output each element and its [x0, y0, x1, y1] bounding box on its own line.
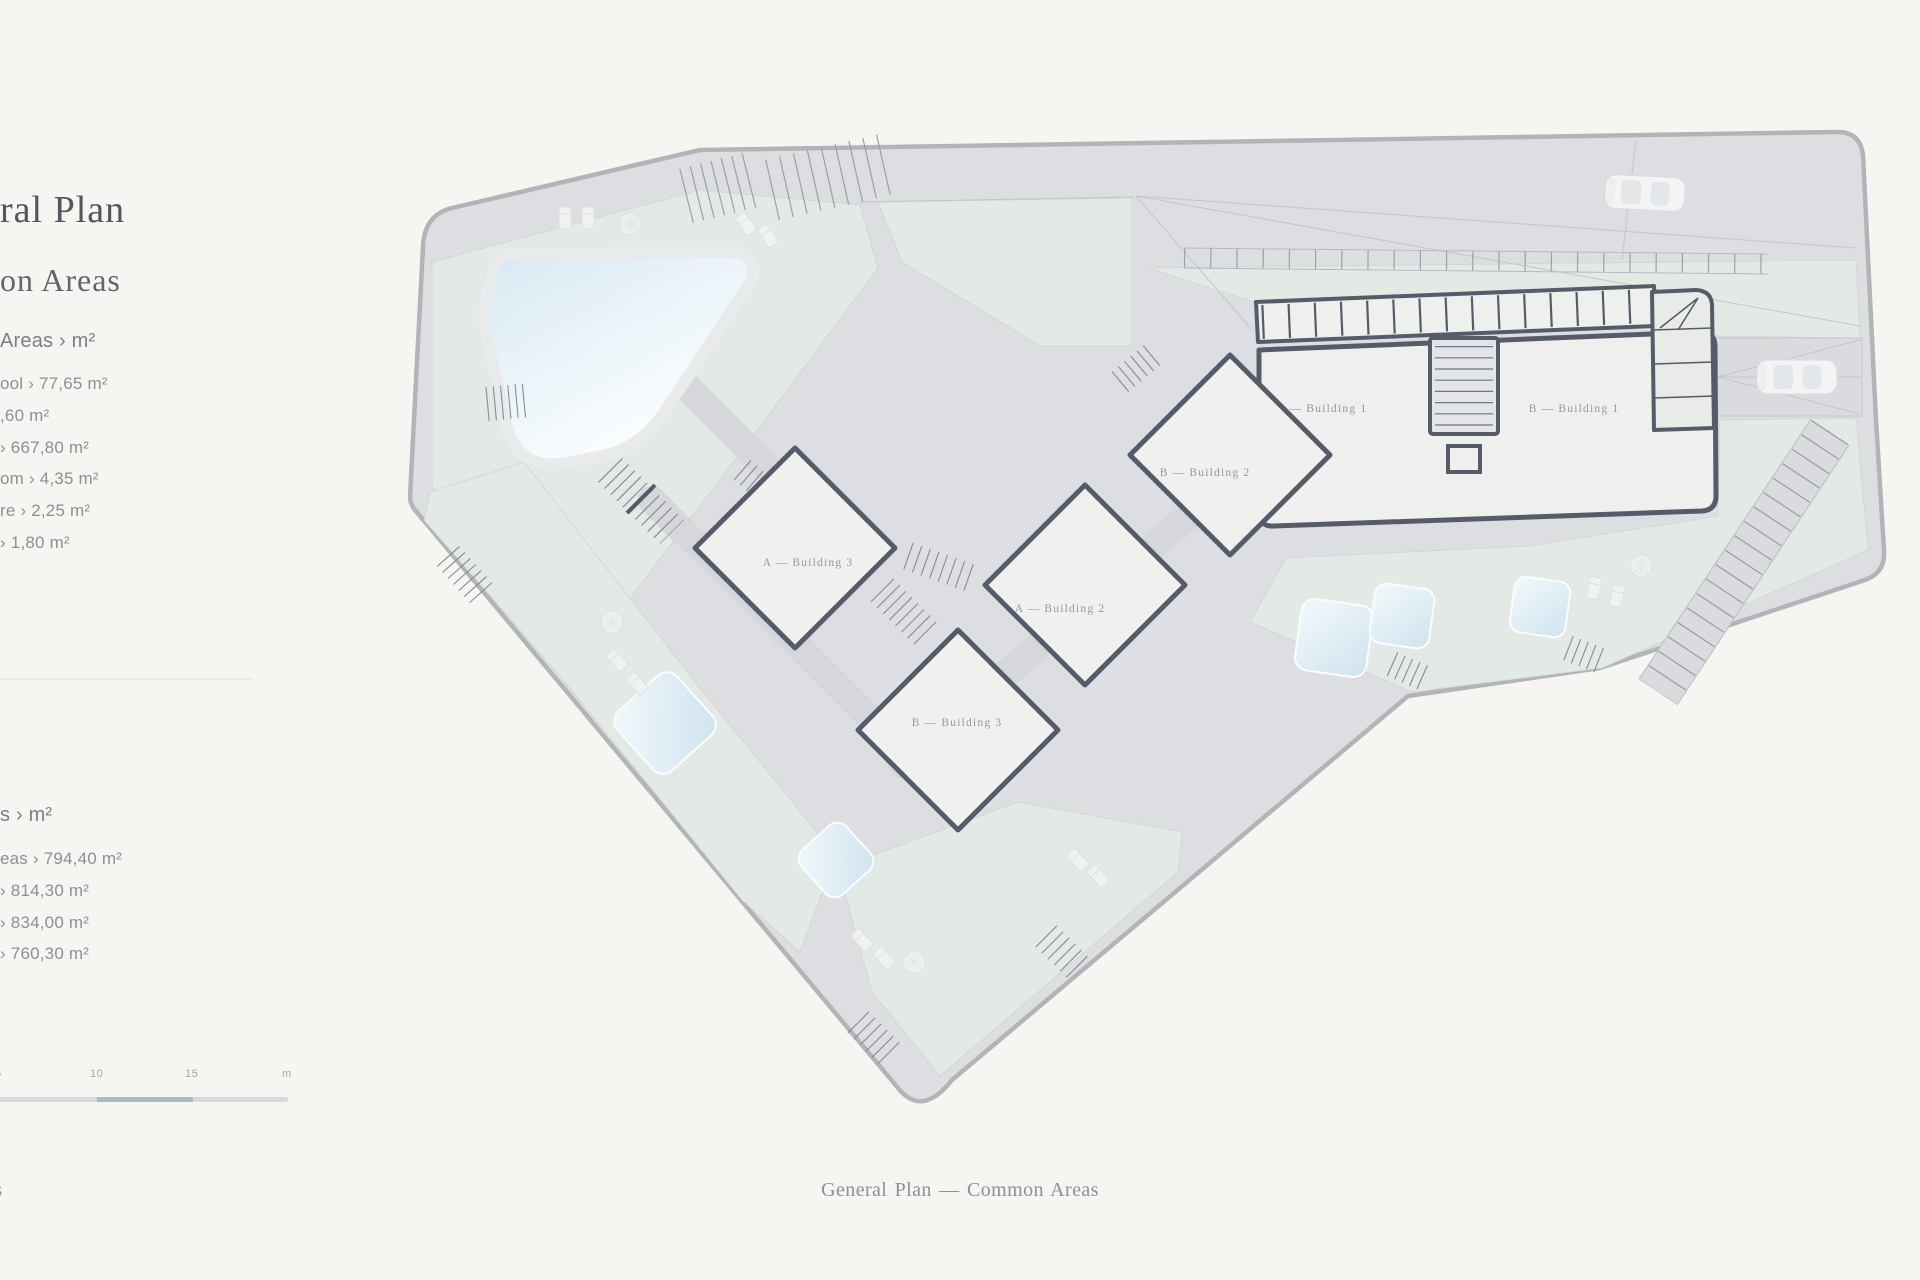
page-subtitle: on Areas [0, 262, 121, 299]
scale-tick-label: m [282, 1068, 292, 1080]
building-label-a3: A — Building 3 [763, 557, 854, 569]
list-item: › 667,80 m² [0, 432, 108, 464]
list-item: re › 2,25 m² [0, 495, 108, 527]
elevator [1448, 446, 1480, 472]
sidebar-divider [0, 678, 253, 680]
plots-header: s › m² [0, 804, 52, 827]
building-label-a2: A — Building 2 [1015, 603, 1106, 615]
plan-caption: General Plan — Common Areas [0, 1179, 1920, 1202]
building-label-b1: B — Building 1 [1529, 403, 1620, 415]
scale-tick-label: 5 [0, 1068, 2, 1080]
list-item: › 760,30 m² [0, 938, 122, 970]
site-plan-drawing: A — Building 1 B — Building 1 A — Buildi… [0, 0, 1920, 1280]
scale-tick-label: 10 [90, 1068, 103, 1080]
pool [1508, 575, 1571, 638]
scale-segment-light [193, 1097, 288, 1102]
list-item: › 834,00 m² [0, 907, 122, 939]
car-icon [1757, 360, 1837, 394]
scale-segment-light [0, 1097, 97, 1102]
list-item: › 814,30 m² [0, 875, 122, 907]
list-item: eas › 794,40 m² [0, 843, 122, 875]
building-1-right-wing [1652, 290, 1714, 430]
plant-icon [903, 951, 925, 973]
pool [1368, 582, 1436, 650]
list-item: › 1,80 m² [0, 527, 108, 559]
common-areas-list: ool › 77,65 m² ,60 m² › 667,80 m² om › 4… [0, 368, 108, 559]
pool [1293, 597, 1374, 678]
car-icon [1604, 174, 1686, 212]
building-label-b2: B — Building 2 [1160, 467, 1251, 479]
scale-tick-label: 15 [185, 1068, 198, 1080]
list-item: om › 4,35 m² [0, 463, 108, 495]
lounger-icon [582, 207, 594, 229]
lounger-icon [559, 207, 571, 229]
building-1: A — Building 1 B — Building 1 [1256, 286, 1716, 526]
building-label-b3: B — Building 3 [912, 717, 1003, 729]
scale-segment-dark [97, 1097, 193, 1102]
common-areas-header: Areas › m² [0, 330, 95, 353]
list-item: ool › 77,65 m² [0, 368, 108, 400]
plots-list: eas › 794,40 m² › 814,30 m² › 834,00 m² … [0, 843, 122, 970]
page-title: ral Plan [0, 188, 125, 232]
plant-icon [619, 213, 641, 235]
plant-icon [1630, 555, 1652, 577]
plant-icon [601, 611, 623, 633]
list-item: ,60 m² [0, 400, 108, 432]
